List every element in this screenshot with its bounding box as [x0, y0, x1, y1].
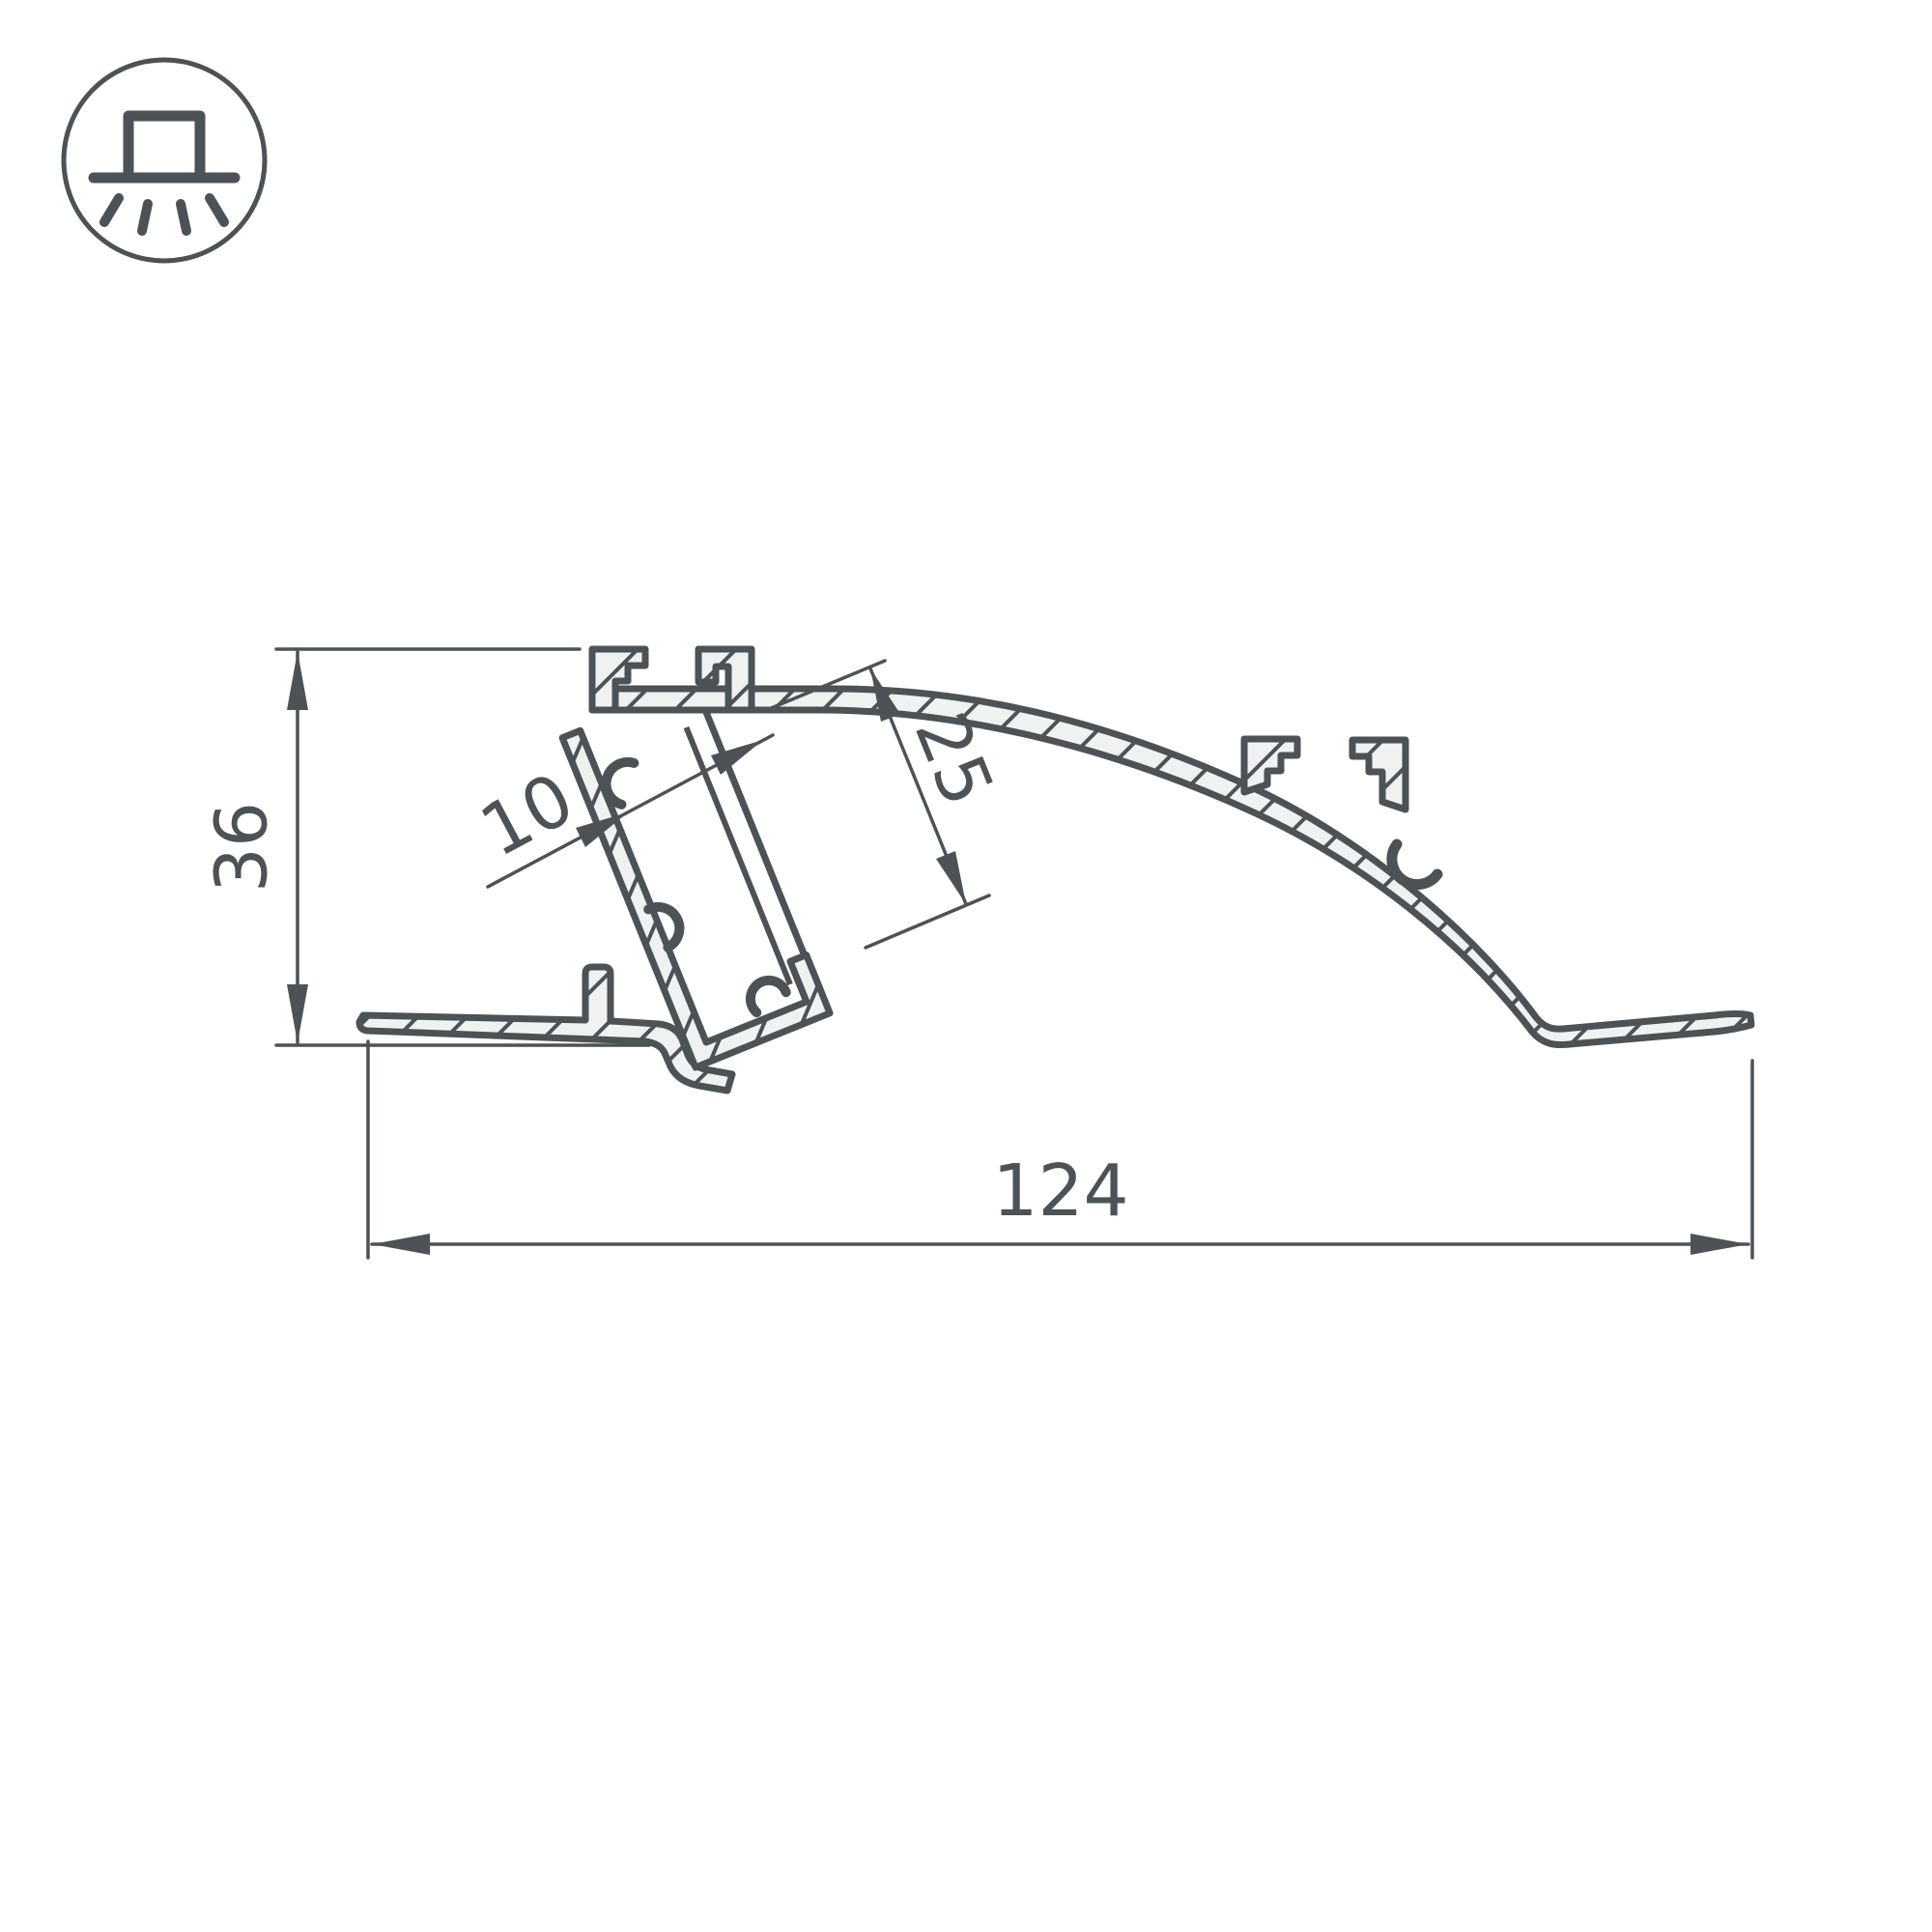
channel-open-edge: [698, 695, 804, 954]
profile-clip-curve-tab2: [1352, 740, 1406, 810]
profile-cross-section: [359, 649, 1751, 1091]
profile-hook-under-curve: [1392, 844, 1437, 885]
arrowhead-25-bottom: [936, 851, 966, 904]
icon-fixture-box: [128, 116, 200, 176]
technical-drawing: 36 124 10 25: [0, 0, 1932, 1932]
arrowhead-right: [1690, 1234, 1748, 1255]
profile-clip-curve-tab1: [1244, 739, 1297, 792]
arrowhead-left: [372, 1234, 430, 1255]
icon-circle: [64, 60, 265, 261]
arrowhead-up: [287, 651, 308, 710]
recessed-light-icon: [64, 60, 265, 261]
icon-light-rays: [104, 198, 224, 231]
dimension-label-36: 36: [201, 802, 284, 893]
dimension-label-10: 10: [468, 757, 587, 873]
channel-snap-hook-bottom: [745, 975, 789, 1013]
ext-line-25-bottom: [866, 895, 989, 948]
dimension-overall-width: 124: [368, 1041, 1752, 1258]
channel-inner-partition: [686, 727, 790, 984]
arrowhead-down: [287, 984, 308, 1043]
dimension-label-124: 124: [992, 1150, 1128, 1233]
dimension-overall-height: 36: [201, 649, 650, 1045]
